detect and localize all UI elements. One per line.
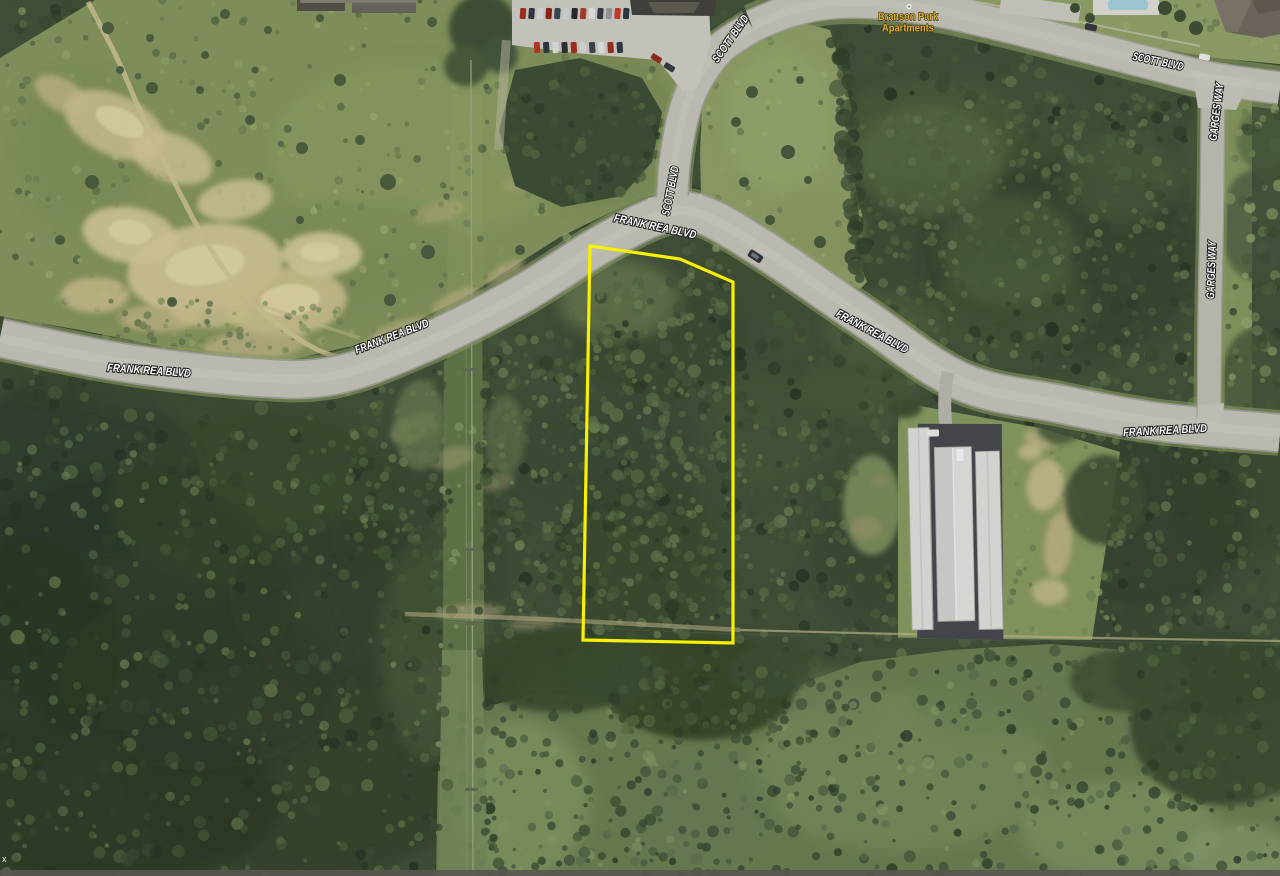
svg-text:Branson Park: Branson Park — [878, 11, 939, 23]
svg-text:Apartments: Apartments — [882, 23, 934, 35]
svg-text:GARGES WAY: GARGES WAY — [1205, 240, 1219, 300]
